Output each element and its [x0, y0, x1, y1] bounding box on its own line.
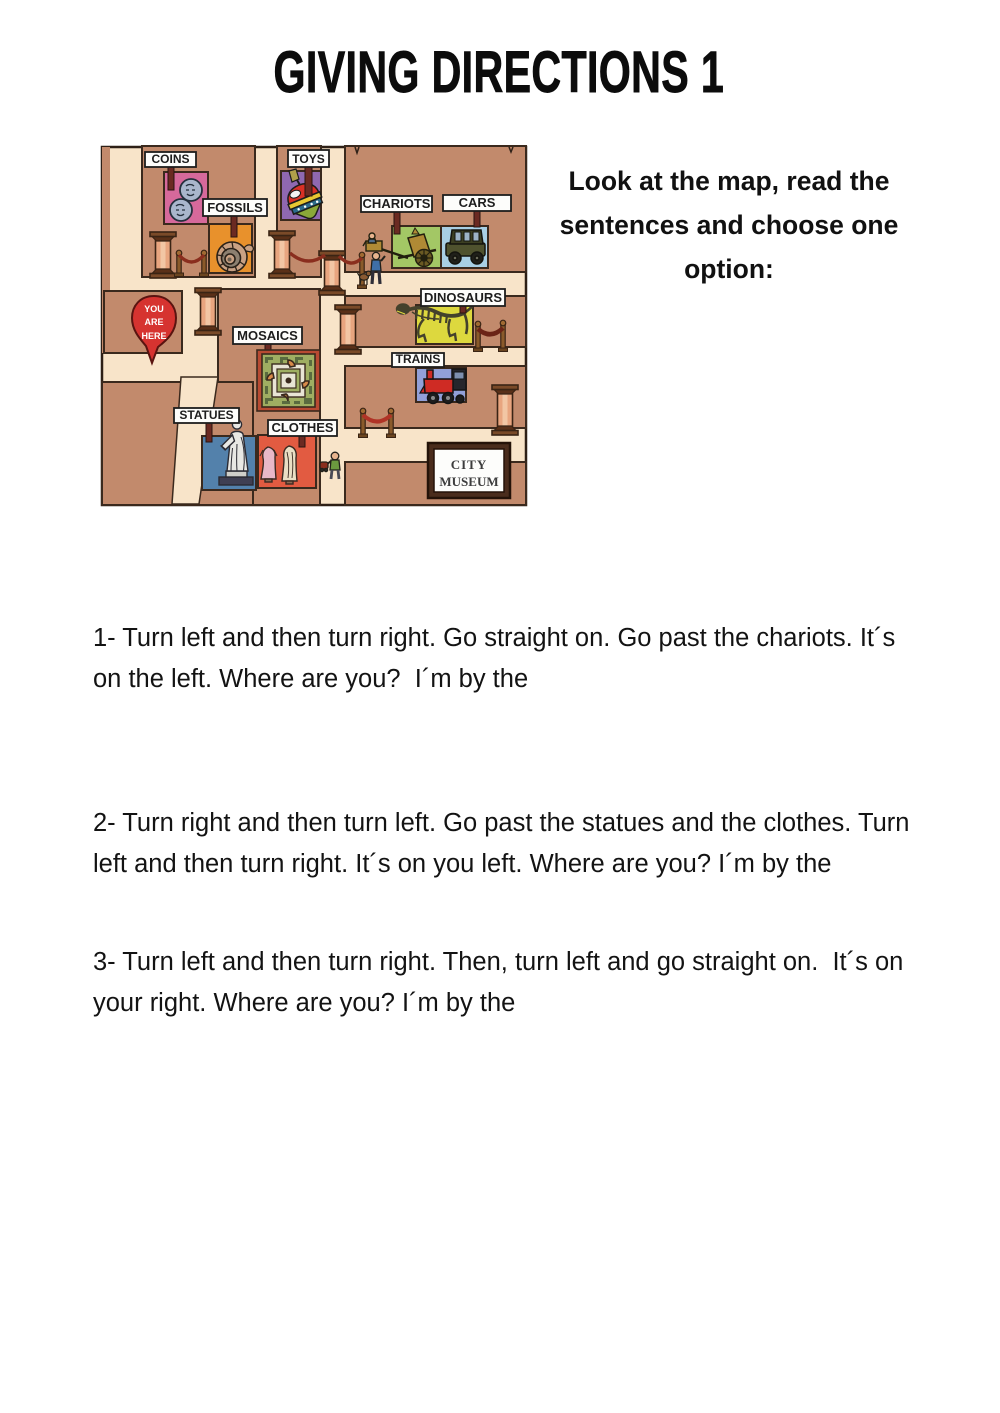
svg-text:TOYS: TOYS — [292, 152, 324, 166]
svg-text:ARE: ARE — [144, 317, 163, 327]
svg-text:CHARIOTS: CHARIOTS — [363, 196, 431, 211]
svg-text:YOU: YOU — [144, 304, 164, 314]
svg-text:STATUES: STATUES — [179, 408, 233, 422]
svg-text:COINS: COINS — [151, 152, 189, 166]
svg-text:MOSAICS: MOSAICS — [237, 328, 298, 343]
svg-text:FOSSILS: FOSSILS — [207, 200, 263, 215]
svg-text:MUSEUM: MUSEUM — [439, 474, 498, 489]
svg-text:HERE: HERE — [141, 331, 166, 341]
svg-text:DINOSAURS: DINOSAURS — [424, 290, 502, 305]
svg-text:CLOTHES: CLOTHES — [271, 420, 333, 435]
svg-text:CARS: CARS — [459, 195, 496, 210]
svg-text:CITY: CITY — [451, 457, 488, 472]
svg-text:TRAINS: TRAINS — [396, 352, 441, 366]
